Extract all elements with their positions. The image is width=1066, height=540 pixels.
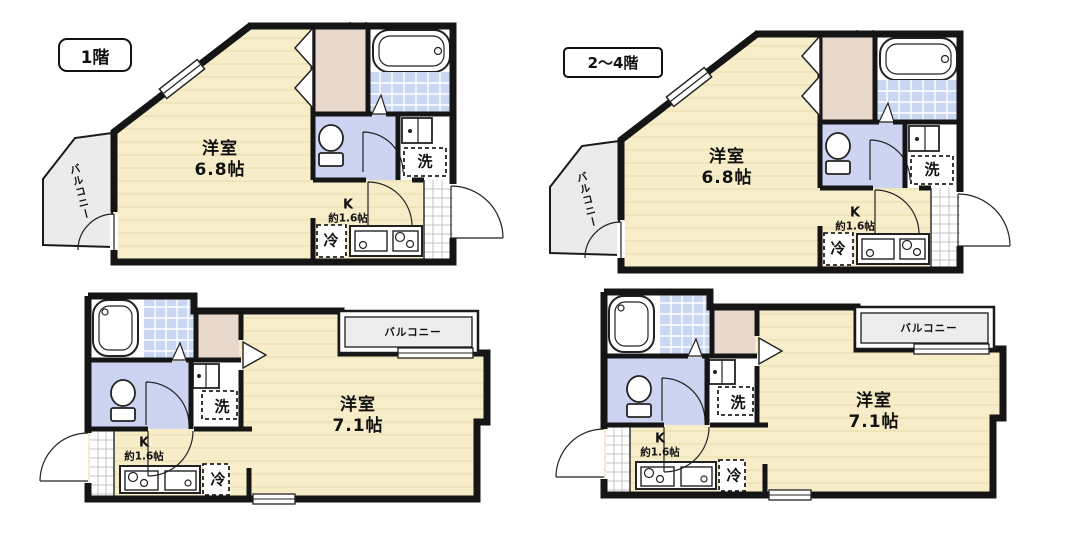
room-label: 洋室 7.1帖 [332, 395, 383, 437]
balcony-label: バルコニー [384, 326, 441, 339]
kitchen-label: K約1.6帖 [835, 207, 875, 234]
balcony-label: バルコニー [900, 322, 957, 335]
washer-label: 洗 [214, 398, 229, 417]
room-label: 洋室 6.8帖 [194, 139, 245, 181]
kitchen-label: K約1.6帖 [328, 199, 368, 226]
washer-label: 洗 [924, 161, 939, 180]
washer-label: 洗 [417, 153, 432, 172]
room-label: 洋室 7.1帖 [848, 391, 899, 433]
fridge-label: 冷 [726, 467, 741, 486]
floor-2-4-label: 2～4階 [563, 47, 663, 78]
fridge-label: 冷 [323, 232, 338, 251]
kitchen-label: K約1.6帖 [124, 437, 164, 464]
room-label: 洋室 6.8帖 [701, 147, 752, 189]
washer-label: 洗 [730, 394, 745, 413]
floorplan-sheet: 1階 2～4階 洋室 6.8帖 バルコニー K約1.6帖 洗 冷 洋室 6.8帖… [0, 0, 1066, 540]
fridge-label: 冷 [210, 471, 225, 490]
fridge-label: 冷 [830, 240, 845, 259]
kitchen-label: K約1.6帖 [640, 433, 680, 460]
floor-1-label: 1階 [58, 38, 132, 72]
